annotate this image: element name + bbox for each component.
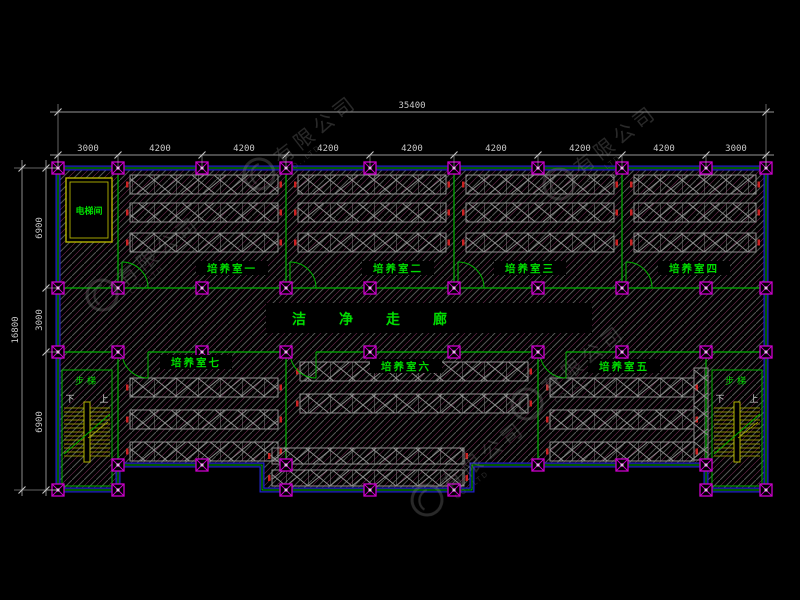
column-marker bbox=[364, 346, 376, 358]
stairs-label: 步梯 bbox=[75, 375, 99, 387]
floor-plan-canvas: 步梯下上步梯下上 电梯间 洁净走廊 培养室一培养室二培养室三培养室四培养室五培养… bbox=[0, 0, 800, 600]
corridor-label: 洁净走廊 bbox=[292, 311, 480, 328]
rack-end-mark bbox=[462, 210, 465, 216]
rack-row bbox=[634, 233, 756, 252]
rack-end-mark bbox=[268, 453, 271, 459]
room-label: 培养室三 bbox=[505, 262, 555, 275]
rack-end-mark bbox=[280, 385, 283, 391]
rack-end-mark bbox=[758, 210, 761, 216]
column-marker bbox=[280, 346, 292, 358]
room-label: 培养室二 bbox=[373, 262, 423, 275]
column-marker bbox=[700, 282, 712, 294]
rack-end-mark bbox=[448, 240, 451, 246]
rack-row bbox=[550, 410, 694, 429]
rack-end-mark bbox=[758, 240, 761, 246]
column-marker bbox=[760, 346, 772, 358]
rack-end-mark bbox=[630, 240, 633, 246]
rack-end-mark bbox=[462, 240, 465, 246]
column-marker bbox=[760, 282, 772, 294]
rack-row bbox=[634, 203, 756, 222]
rack-row bbox=[130, 378, 278, 397]
rack-end-mark bbox=[448, 210, 451, 216]
room-label: 培养室一 bbox=[207, 262, 257, 275]
column-marker bbox=[448, 346, 460, 358]
rack-row bbox=[550, 442, 694, 461]
room-label: 培养室五 bbox=[599, 360, 649, 373]
rack-end-mark bbox=[294, 240, 297, 246]
bay-width-dim: 4200 bbox=[149, 144, 171, 154]
column-marker bbox=[280, 459, 292, 471]
rack-end-mark bbox=[280, 417, 283, 423]
column-marker bbox=[364, 282, 376, 294]
rack-row bbox=[130, 410, 278, 429]
rack-end-mark bbox=[462, 182, 465, 188]
bay-width-dim: 4200 bbox=[233, 144, 255, 154]
rack-end-mark bbox=[758, 182, 761, 188]
rack-end-mark bbox=[126, 182, 129, 188]
stairs-down-label: 下 bbox=[715, 395, 724, 405]
rack-end-mark bbox=[448, 182, 451, 188]
column-marker bbox=[112, 459, 124, 471]
column-marker bbox=[532, 282, 544, 294]
rack-row bbox=[298, 203, 446, 222]
bay-width-dim: 4200 bbox=[653, 144, 675, 154]
rack-end-mark bbox=[294, 210, 297, 216]
rack-end-mark bbox=[546, 417, 549, 423]
column-marker bbox=[700, 484, 712, 496]
room-label: 培养室四 bbox=[669, 262, 719, 275]
rack-end-mark bbox=[280, 210, 283, 216]
rack-column bbox=[694, 368, 708, 460]
column-marker bbox=[700, 459, 712, 471]
rack-row bbox=[300, 394, 528, 413]
elevator-label: 电梯间 bbox=[75, 205, 102, 217]
column-marker bbox=[112, 346, 124, 358]
rack-row bbox=[298, 233, 446, 252]
rack-end-mark bbox=[616, 182, 619, 188]
column-marker bbox=[616, 459, 628, 471]
rack-end-mark bbox=[630, 182, 633, 188]
bay-width-dim: 3000 bbox=[725, 144, 747, 154]
column-marker bbox=[532, 459, 544, 471]
rack-end-mark bbox=[126, 417, 129, 423]
rack-end-mark bbox=[126, 240, 129, 246]
column-marker bbox=[112, 484, 124, 496]
column-marker bbox=[280, 282, 292, 294]
room-label: 培养室六 bbox=[381, 360, 431, 373]
stairs-up-label: 上 bbox=[749, 394, 758, 405]
column-marker bbox=[760, 484, 772, 496]
rack-end-mark bbox=[280, 240, 283, 246]
bay-width-dim: 3000 bbox=[77, 144, 99, 154]
column-marker bbox=[616, 282, 628, 294]
rack-row bbox=[272, 448, 464, 464]
bay-width-dim: 4200 bbox=[401, 144, 423, 154]
clean-corridor: 洁净走廊 bbox=[266, 303, 592, 333]
room-label: 培养室七 bbox=[171, 356, 221, 369]
bay-depth-dim: 3000 bbox=[35, 309, 45, 331]
rack-end-mark bbox=[280, 182, 283, 188]
rack-end-mark bbox=[268, 475, 271, 481]
column-marker bbox=[364, 484, 376, 496]
column-marker bbox=[280, 484, 292, 496]
rack-end-mark bbox=[126, 210, 129, 216]
stairs-up-label: 上 bbox=[99, 394, 108, 405]
elevator-shaft: 电梯间 bbox=[66, 178, 112, 242]
rack-end-mark bbox=[546, 449, 549, 455]
overall-depth-dim: 16800 bbox=[11, 316, 21, 343]
rack-end-mark bbox=[530, 369, 533, 375]
bay-width-dim: 4200 bbox=[485, 144, 507, 154]
rack-end-mark bbox=[616, 240, 619, 246]
column-marker bbox=[196, 459, 208, 471]
rack-end-mark bbox=[530, 401, 533, 407]
column-marker bbox=[532, 346, 544, 358]
stairs-label: 步梯 bbox=[725, 375, 749, 387]
rack-end-mark bbox=[616, 210, 619, 216]
column-marker bbox=[700, 346, 712, 358]
rack-row bbox=[130, 203, 278, 222]
rack-row bbox=[298, 175, 446, 194]
overall-width-dim: 35400 bbox=[398, 101, 425, 111]
rack-row bbox=[130, 442, 278, 461]
rack-end-mark bbox=[126, 385, 129, 391]
rack-end-mark bbox=[296, 401, 299, 407]
column-marker bbox=[448, 282, 460, 294]
bay-depth-dim: 6900 bbox=[35, 411, 45, 433]
column-marker bbox=[196, 282, 208, 294]
rack-end-mark bbox=[294, 182, 297, 188]
rack-end-mark bbox=[126, 449, 129, 455]
rack-row bbox=[466, 233, 614, 252]
rack-row bbox=[634, 175, 756, 194]
rack-row bbox=[466, 203, 614, 222]
rack-end-mark bbox=[630, 210, 633, 216]
bay-depth-dim: 6900 bbox=[35, 217, 45, 239]
stairs-down-label: 下 bbox=[65, 395, 74, 405]
